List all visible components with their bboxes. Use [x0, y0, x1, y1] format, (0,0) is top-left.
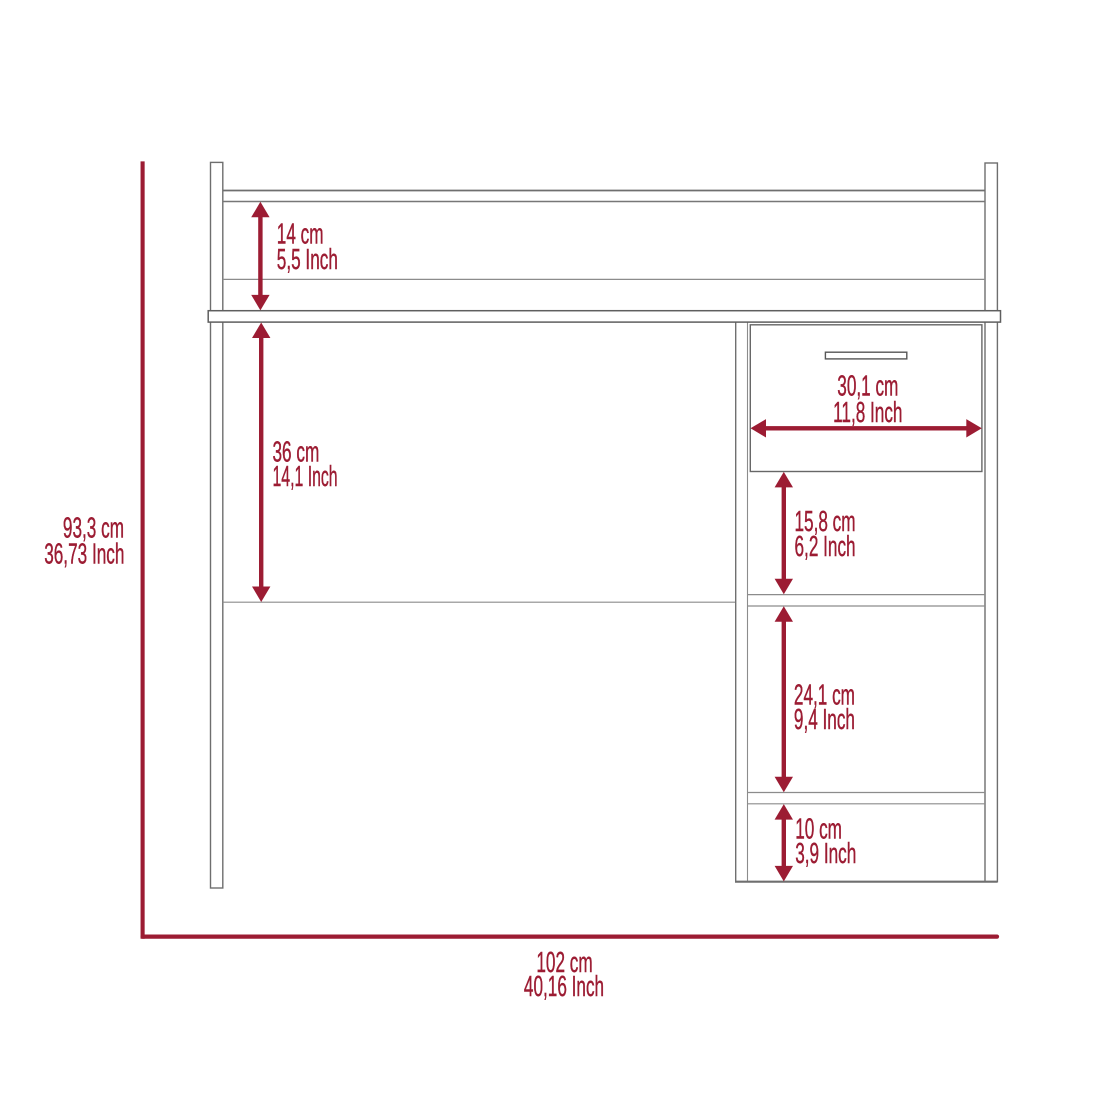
- svg-text:14,1 Inch: 14,1 Inch: [273, 461, 338, 494]
- svg-text:36,73 Inch: 36,73 Inch: [44, 538, 124, 571]
- svg-text:3,9 Inch: 3,9 Inch: [795, 837, 856, 870]
- svg-text:5,5 Inch: 5,5 Inch: [277, 244, 338, 277]
- svg-text:9,4 Inch: 9,4 Inch: [794, 703, 855, 736]
- svg-text:11,8 Inch: 11,8 Inch: [833, 396, 902, 429]
- svg-text:6,2 Inch: 6,2 Inch: [795, 531, 856, 564]
- svg-text:40,16 Inch: 40,16 Inch: [524, 970, 604, 1003]
